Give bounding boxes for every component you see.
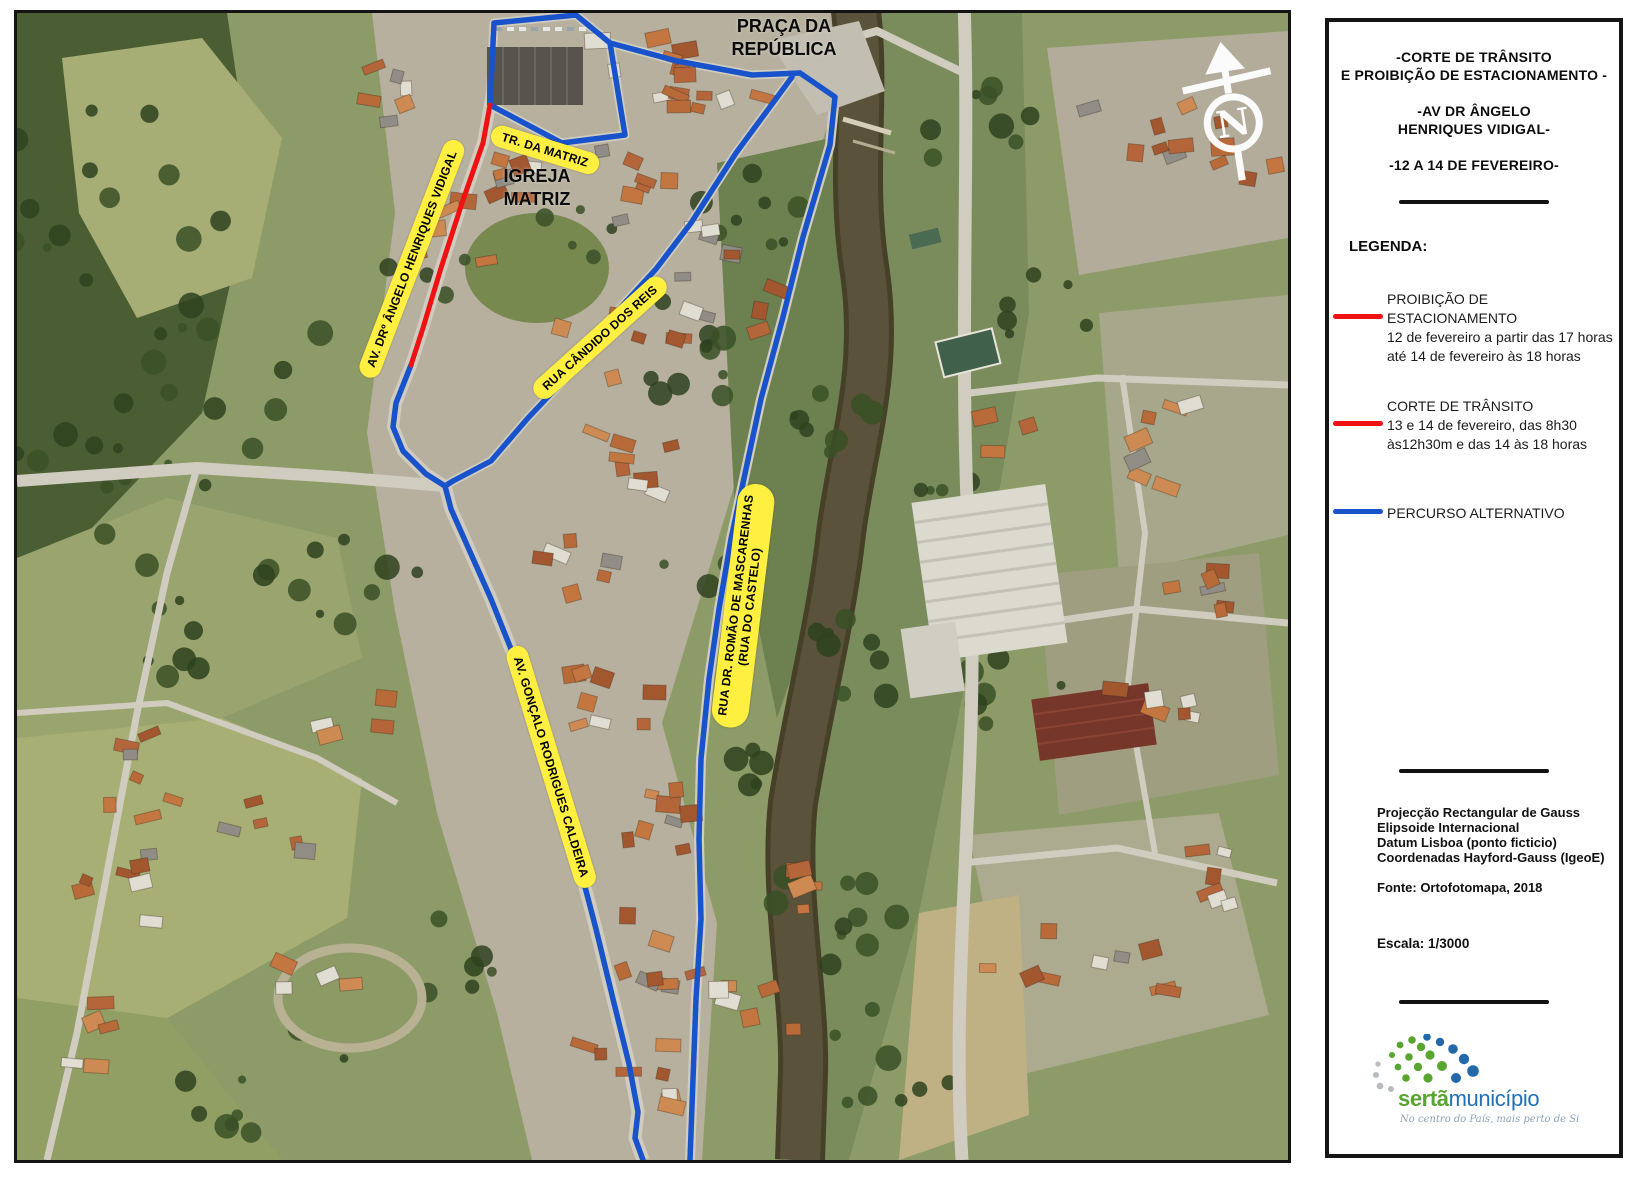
logo-name: sertãmunicípio <box>1398 1086 1539 1112</box>
divider <box>1399 200 1549 204</box>
route-alt-av-goncalo <box>445 486 643 1160</box>
place-label-igreja-matriz: IGREJA MATRIZ <box>503 165 570 210</box>
source-note: Fonte: Ortofotomapa, 2018 <box>1377 880 1542 895</box>
legend-item-road-closure: CORTE DE TRÂNSITO 13 e 14 de fevereiro, … <box>1387 397 1587 454</box>
legend-swatch-alt-route <box>1333 509 1383 514</box>
north-letter: N <box>1213 99 1253 148</box>
logo-name-regular: município <box>1449 1086 1540 1111</box>
legend-swatch-no-parking <box>1333 314 1383 319</box>
north-arrow: N <box>1177 35 1287 195</box>
logo-tagline: No centro do País, mais perto de Si <box>1400 1114 1579 1125</box>
route-overlay <box>17 13 1288 1160</box>
divider <box>1399 1000 1549 1004</box>
plan-title: -CORTE DE TRÂNSITO E PROIBIÇÃO DE ESTACI… <box>1329 48 1619 174</box>
legend-swatch-road-closure <box>1333 421 1383 426</box>
logo-name-bold: sertã <box>1398 1086 1449 1111</box>
scale-note: Escala: 1/3000 <box>1377 936 1469 951</box>
route-alt-rua-romao <box>690 73 835 1160</box>
legend-item-no-parking: PROIBIÇÃO DE ESTACIONAMENTO 12 de fevere… <box>1387 290 1619 366</box>
route-alt-market-loop <box>490 15 625 143</box>
place-label-praca-republica: PRAÇA DA REPÚBLICA <box>731 15 836 60</box>
logo-dots-icon <box>1370 1034 1490 1094</box>
route-alt-junction-link <box>393 365 445 486</box>
projection-info: Projecção Rectangular de Gauss Elipsoide… <box>1377 805 1605 865</box>
legend-heading: LEGENDA: <box>1349 238 1427 255</box>
serta-municipio-logo: sertãmunicípio No centro do País, mais p… <box>1364 1034 1584 1146</box>
plan-sheet: TR. DA MATRIZ AV. DRº ÂNGELO HENRIQUES V… <box>0 0 1649 1180</box>
legend-item-alt-route: PERCURSO ALTERNATIVO <box>1387 504 1565 523</box>
map-area: TR. DA MATRIZ AV. DRº ÂNGELO HENRIQUES V… <box>14 10 1291 1163</box>
divider <box>1399 769 1549 773</box>
info-panel: -CORTE DE TRÂNSITO E PROIBIÇÃO DE ESTACI… <box>1325 18 1623 1158</box>
